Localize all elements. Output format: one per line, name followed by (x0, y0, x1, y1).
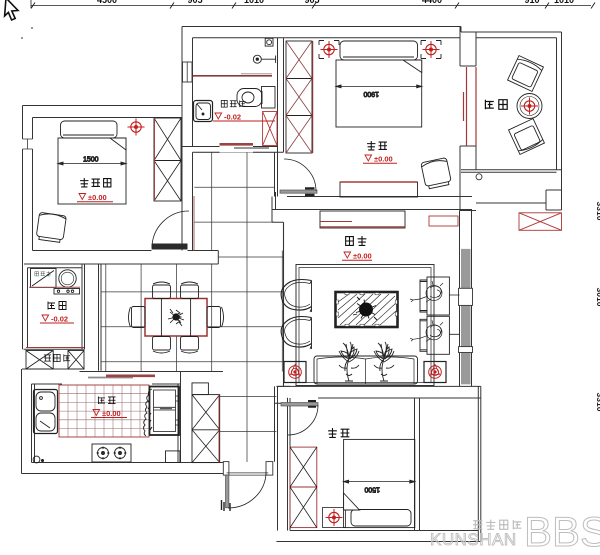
svg-text:±0.00: ±0.00 (374, 155, 393, 164)
svg-text:3010: 3010 (595, 288, 600, 307)
svg-text:1010: 1010 (244, 0, 264, 5)
svg-text:±0.00: ±0.00 (88, 193, 107, 202)
svg-text:1500: 1500 (83, 157, 99, 164)
svg-text:1900: 1900 (363, 90, 379, 97)
svg-text:KUNSHAN: KUNSHAN (430, 530, 517, 549)
svg-text:4400: 4400 (422, 0, 442, 5)
svg-text:1500: 1500 (364, 486, 380, 493)
svg-text:3310: 3310 (595, 393, 600, 412)
svg-text:1010: 1010 (554, 0, 574, 5)
svg-text:±0.00: ±0.00 (102, 409, 121, 418)
svg-text:BBS: BBS (524, 508, 600, 555)
svg-text:3310: 3310 (595, 202, 600, 221)
svg-text:-0.02: -0.02 (51, 315, 68, 324)
svg-text:4500: 4500 (97, 0, 117, 5)
svg-text:±0.00: ±0.00 (353, 252, 372, 261)
svg-text:905: 905 (304, 0, 319, 5)
svg-text:910: 910 (524, 0, 539, 5)
svg-text:-0.02: -0.02 (224, 113, 241, 122)
svg-text:905: 905 (187, 0, 202, 5)
